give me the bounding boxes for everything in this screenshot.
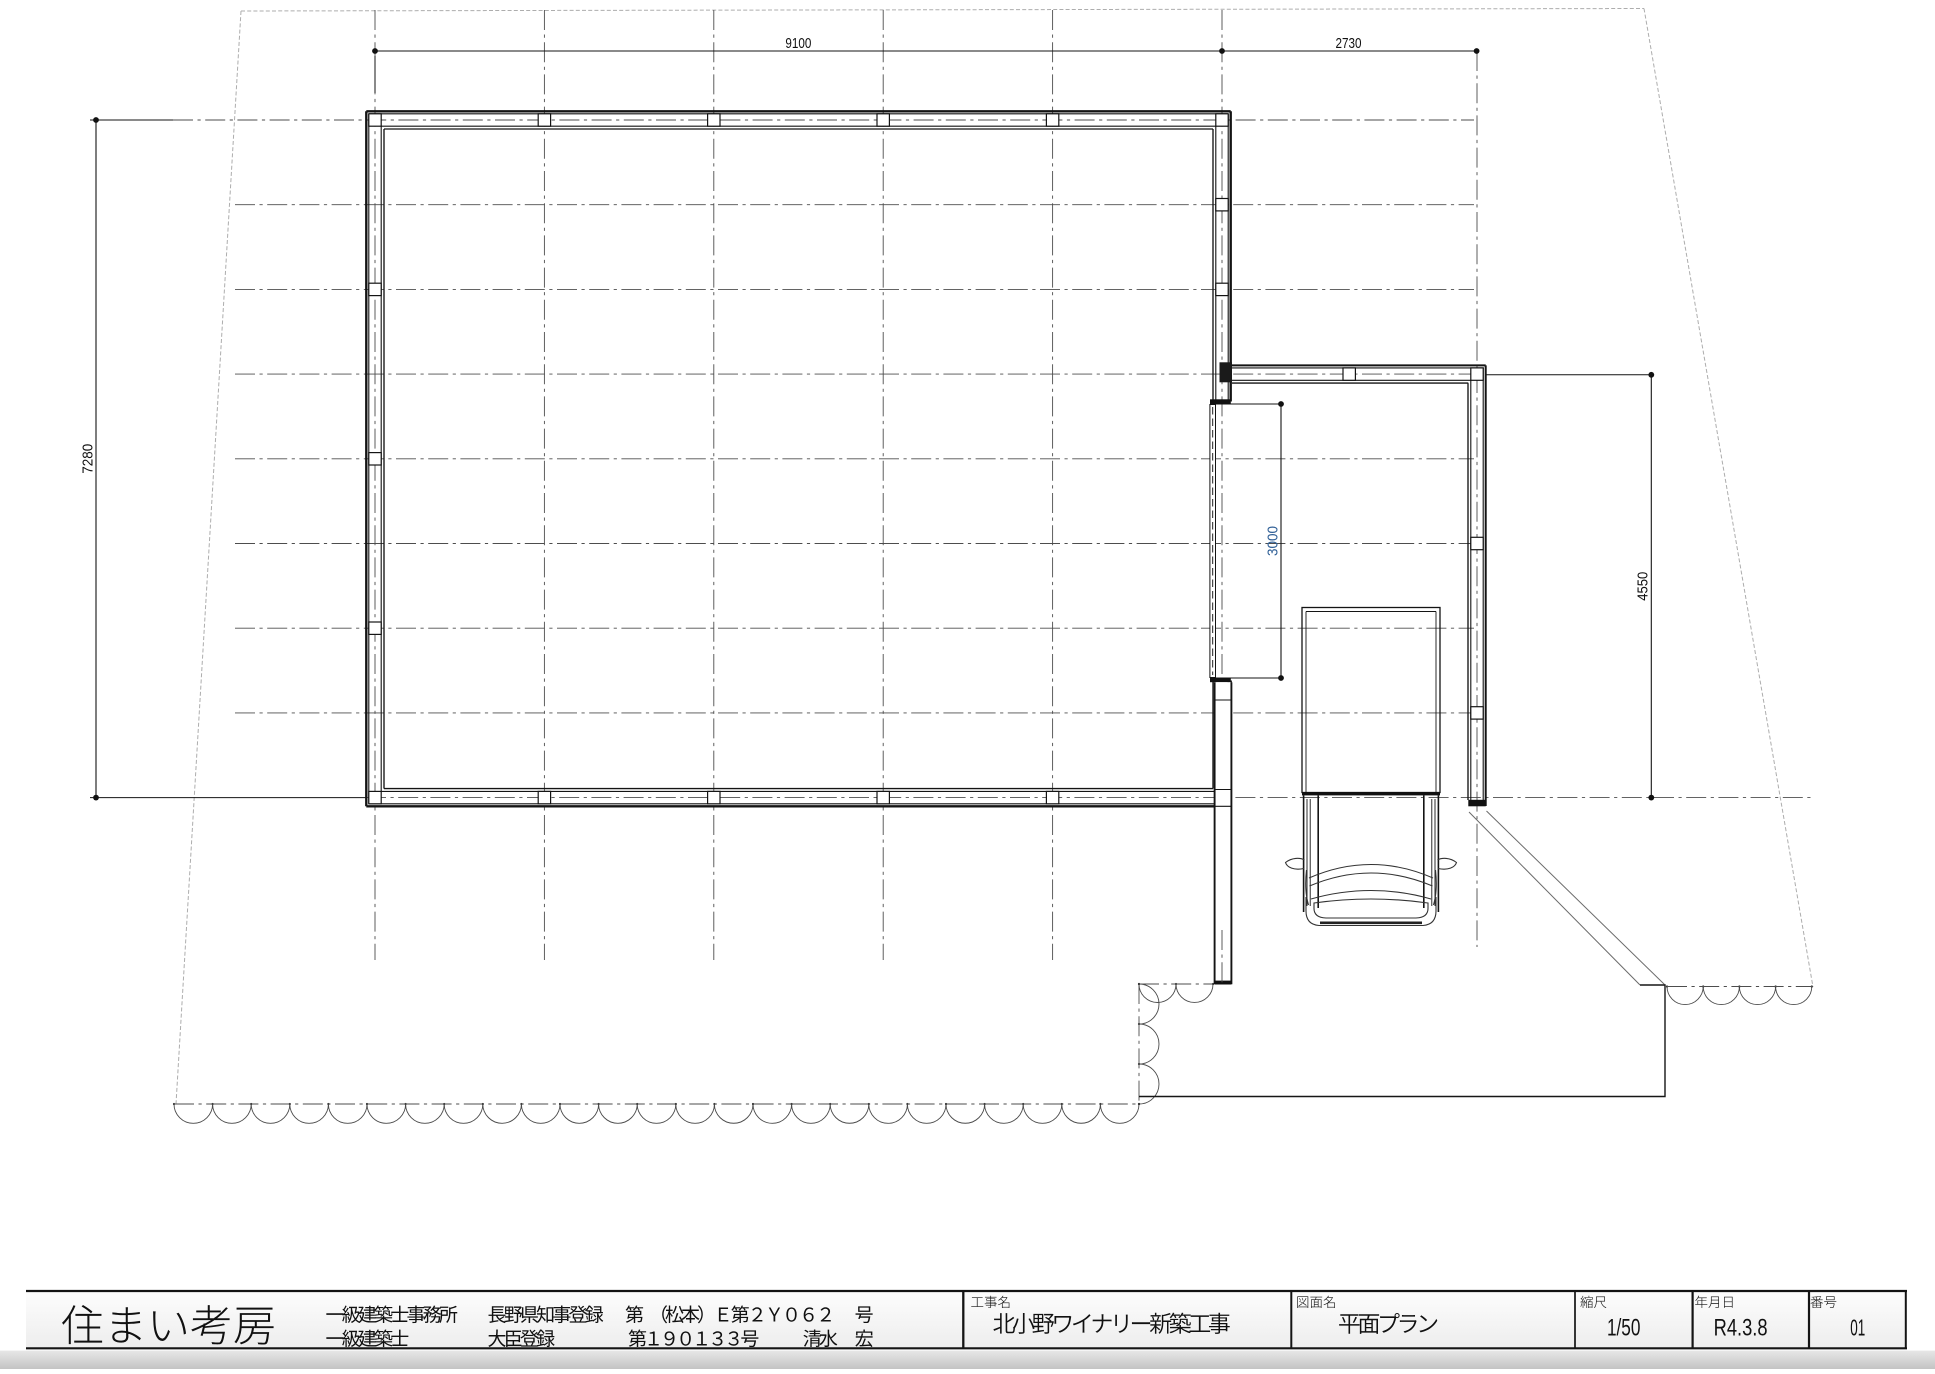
svg-text:7280: 7280	[79, 444, 96, 474]
svg-text:3000: 3000	[1264, 526, 1281, 556]
svg-text:2730: 2730	[1336, 35, 1362, 52]
svg-text:9100: 9100	[785, 35, 811, 52]
svg-text:1/50: 1/50	[1607, 1315, 1641, 1342]
svg-text:01: 01	[1850, 1314, 1865, 1340]
svg-text:R4.3.8: R4.3.8	[1714, 1315, 1768, 1342]
svg-text:4550: 4550	[1635, 572, 1652, 601]
